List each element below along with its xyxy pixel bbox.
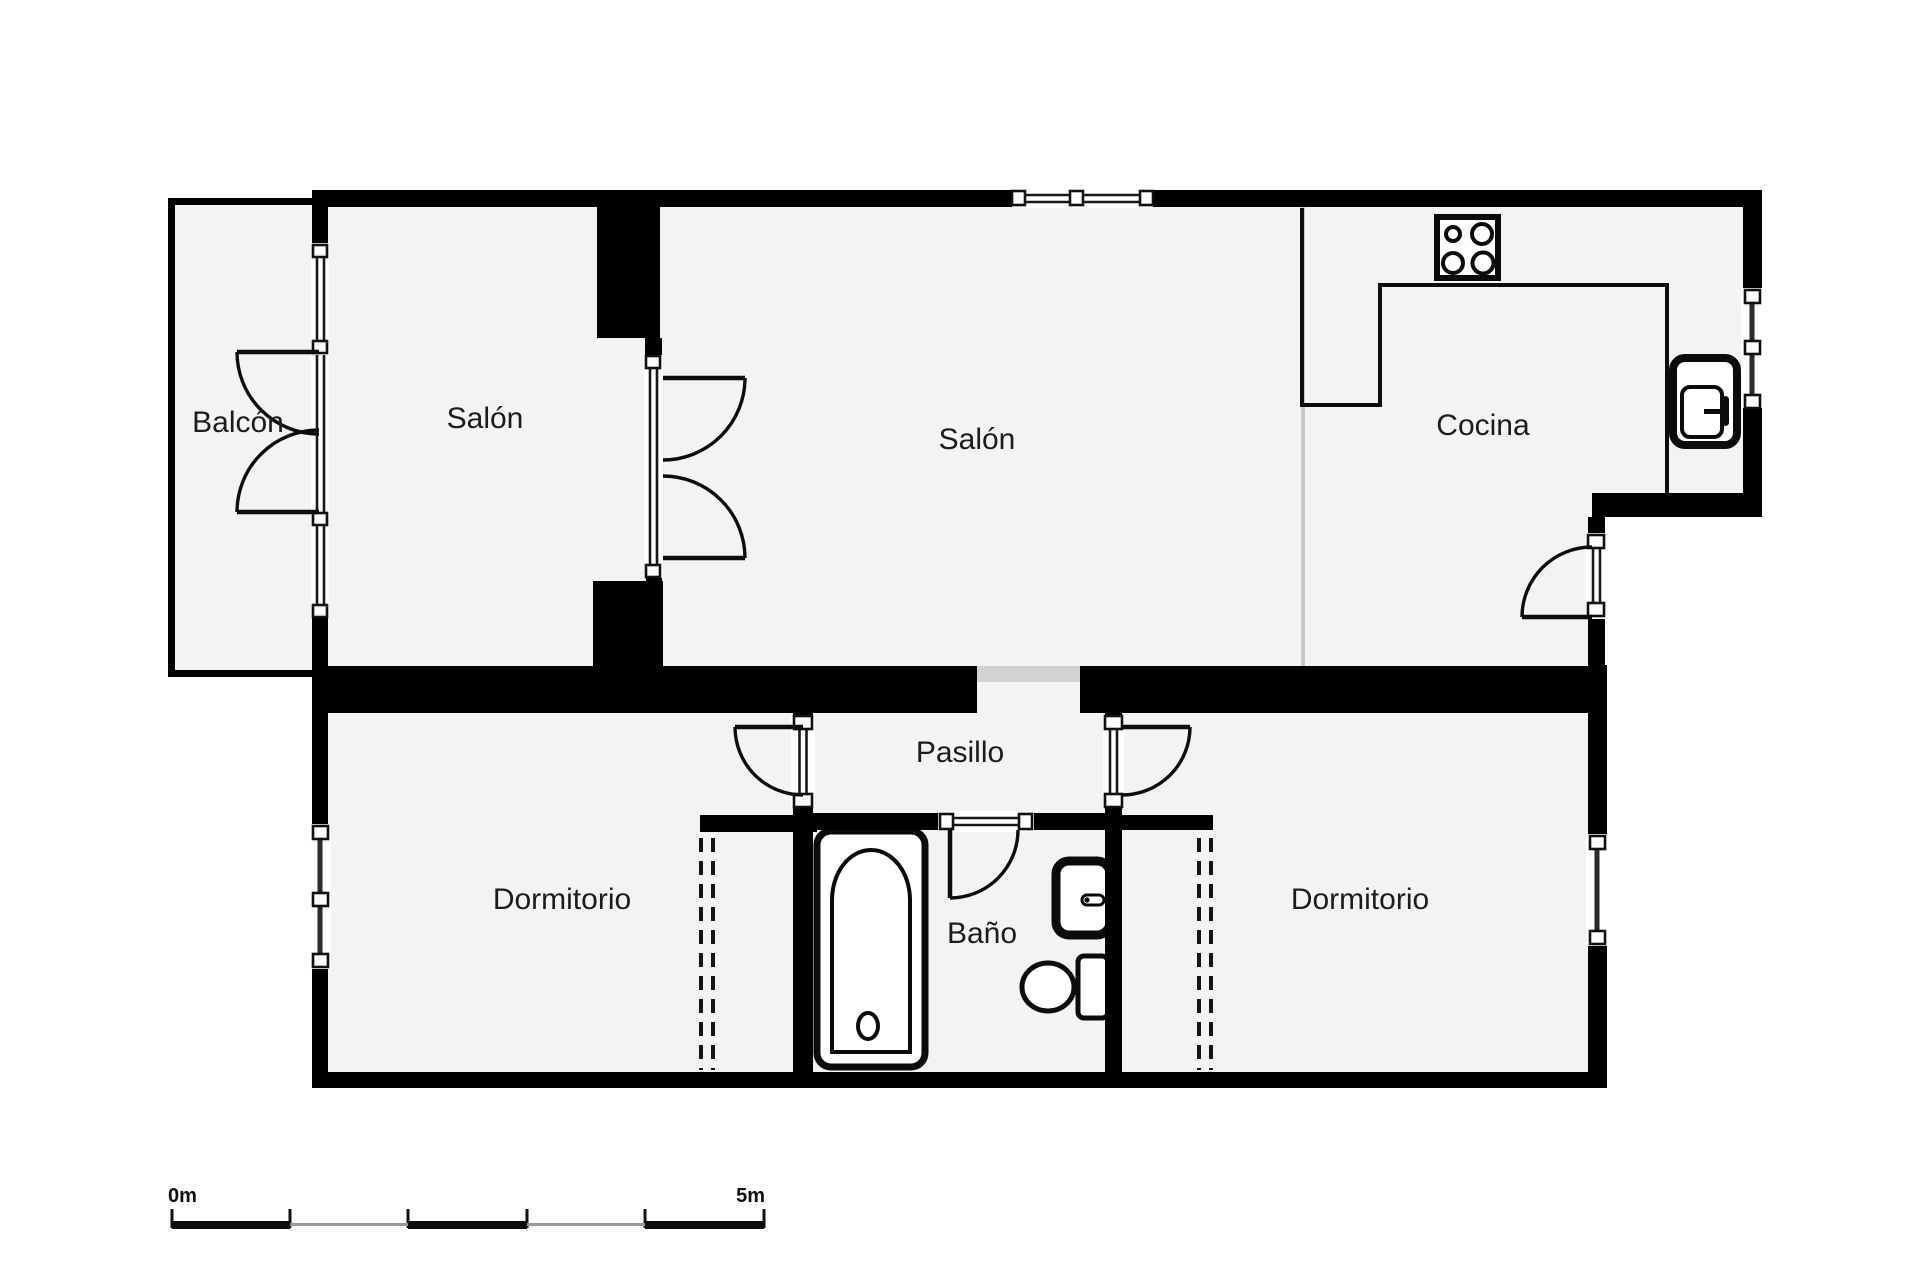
wall-top-right: [1153, 190, 1762, 207]
window-box: [644, 355, 663, 578]
salon-pillar-top: [597, 190, 660, 338]
label-cocina: Cocina: [1436, 409, 1530, 442]
label-salon-left: Salón: [447, 402, 524, 435]
window-mullion: [313, 893, 328, 906]
window-mullion: [313, 605, 327, 617]
window-mullion: [313, 826, 328, 839]
balcony-wall-bottom: [168, 670, 314, 677]
hall-left-wall: [793, 801, 813, 1072]
label-pasillo: Pasillo: [916, 736, 1004, 769]
label-dormitorio-left: Dormitorio: [493, 883, 631, 916]
bath-top-wall-left: [813, 813, 940, 830]
doorway-bath: [938, 811, 1034, 832]
window-cocina-right: [1741, 288, 1764, 408]
doorway-hall-right: [1103, 715, 1124, 807]
label-balcon: Balcón: [192, 406, 284, 439]
scale-segment-empty: [290, 1223, 408, 1226]
stove-burner: [1473, 253, 1494, 274]
washbasin-icon: [1056, 861, 1110, 935]
wall-top-left: [312, 190, 1012, 207]
wall-left-upper: [312, 190, 328, 243]
window-mullion: [1745, 395, 1760, 408]
wall-left-lower: [312, 967, 328, 1088]
window-mullion: [313, 245, 327, 257]
window-mullion: [646, 565, 660, 577]
balcony-wall-left: [168, 198, 175, 677]
door-jamb-block: [1105, 794, 1122, 807]
kitchen-door-wall-upper: [1588, 517, 1605, 535]
toilet-bowl: [1022, 963, 1074, 1011]
label-bano: Baño: [947, 917, 1017, 950]
washbasin-faucet-dot: [1084, 897, 1089, 902]
closet-stub-left: [700, 815, 817, 832]
scale-segment-empty: [527, 1223, 645, 1226]
salon-hall-opening: [977, 666, 1080, 713]
divider-wall-right: [1080, 666, 1607, 713]
window-dormitorio-right: [1586, 834, 1609, 946]
scale-bar: 0m 5m: [168, 1185, 765, 1229]
glazed-door-salon: [644, 355, 663, 578]
door-jamb-block: [1105, 716, 1122, 729]
divider-wall-left: [312, 666, 977, 713]
bathtub-drain: [858, 1013, 878, 1039]
wall-bottom: [312, 1072, 1607, 1088]
kitchen-sink-icon: [1673, 358, 1737, 445]
salon-pillar-bottom: [593, 581, 663, 666]
stove-icon: [1437, 217, 1498, 278]
stove-burner: [1443, 253, 1463, 273]
door-jamb-block: [940, 814, 953, 829]
floor-plan: Balcón Salón Salón Cocina Pasillo Dormit…: [0, 0, 1920, 1280]
window-dormitorio-left: [310, 824, 331, 969]
wall-right-upper: [1743, 190, 1762, 290]
kitchen-step-wall: [1592, 493, 1762, 517]
lower-rooms-floor: [328, 666, 1588, 1072]
floor-plan-page: Balcón Salón Salón Cocina Pasillo Dormit…: [0, 0, 1920, 1280]
salon-wall-stub-top: [645, 338, 662, 355]
window-mullion: [1070, 191, 1083, 205]
opening-strip: [977, 666, 1080, 682]
window-mullion: [1745, 290, 1760, 303]
wall-left-mid: [312, 617, 328, 826]
label-dormitorio-right: Dormitorio: [1291, 883, 1429, 916]
window-mullion: [1745, 341, 1760, 354]
toilet-tank: [1078, 956, 1108, 1018]
bathtub-icon: [817, 831, 925, 1067]
kitchen-door-wall-lower: [1588, 617, 1605, 665]
bath-right-wall: [1105, 801, 1122, 1072]
door-jamb-block: [1588, 603, 1604, 616]
label-salon-main: Salón: [939, 423, 1016, 456]
window-mullion: [646, 356, 660, 368]
balcony-wall-top: [168, 198, 316, 205]
window-mullion: [313, 513, 327, 525]
window-mullion: [1140, 191, 1153, 205]
scale-segment-filled: [645, 1221, 764, 1229]
window-mullion: [1012, 191, 1025, 205]
window-mullion: [313, 954, 328, 967]
window-salon-top: [1012, 189, 1153, 208]
closet-stub-right: [1108, 815, 1213, 830]
wall-bedroom-right-lower: [1588, 944, 1607, 1088]
scale-end-label: 5m: [736, 1185, 765, 1207]
window-mullion: [1590, 836, 1605, 849]
door-jamb-block: [1019, 814, 1032, 829]
window-mullion: [1590, 931, 1605, 944]
stove-burner: [1472, 224, 1492, 244]
sink-faucet-spout: [1704, 409, 1725, 414]
scale-segment-filled: [172, 1221, 290, 1229]
stove-burner: [1446, 227, 1460, 241]
bath-top-wall-right: [1032, 813, 1105, 830]
opening-floor: [977, 682, 1080, 713]
scale-start-label: 0m: [168, 1185, 197, 1207]
scale-segment-filled: [408, 1221, 527, 1229]
